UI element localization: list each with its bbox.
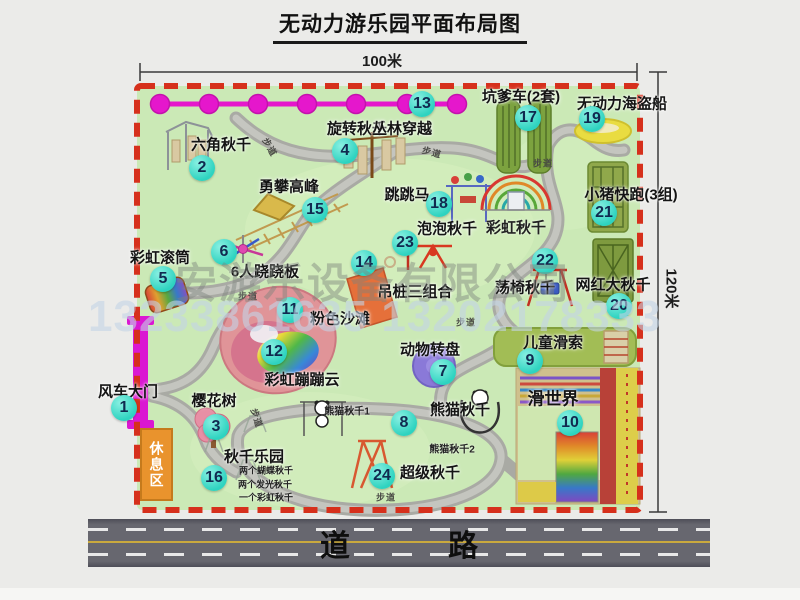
attraction-badge-3: 3 — [203, 414, 229, 440]
sub-label-0: 彩虹秋千 — [486, 217, 546, 238]
attraction-badge-19: 19 — [579, 106, 605, 132]
attraction-label-23: 泡泡秋千 — [417, 218, 477, 239]
attraction-label-15: 勇攀高峰 — [259, 176, 319, 197]
attraction-badge-4: 4 — [332, 138, 358, 164]
walkway-label-6: 步道 — [376, 491, 396, 504]
sub-label-4: 两个发光秋千 — [238, 478, 292, 491]
attraction-label-22: 荡椅秋千 — [495, 277, 555, 298]
attraction-badge-22: 22 — [532, 248, 558, 274]
attraction-badge-18: 18 — [426, 191, 452, 217]
height-dimension-label: 120米 — [662, 268, 683, 308]
attraction-label-2: 六角秋千 — [191, 134, 251, 155]
attraction-badge-5: 5 — [150, 266, 176, 292]
rest-area-label: 休息区 — [147, 441, 167, 489]
attraction-badge-23: 23 — [392, 230, 418, 256]
attraction-badge-6: 6 — [211, 239, 237, 265]
attraction-badge-2: 2 — [189, 155, 215, 181]
attraction-badge-8: 8 — [391, 410, 417, 436]
attraction-badge-16: 16 — [201, 465, 227, 491]
attraction-badge-15: 15 — [302, 197, 328, 223]
road-label: 道 路 — [286, 521, 512, 565]
playground-map-page: 无动力游乐园平面布局图 — [0, 0, 800, 600]
attraction-badge-13: 13 — [409, 91, 435, 117]
attraction-badge-21: 21 — [591, 200, 617, 226]
attraction-label-20: 网红大秋千 — [575, 274, 650, 295]
attraction-label-6: 6人跷跷板 — [231, 261, 299, 282]
page-title: 无动力游乐园平面布局图 — [273, 8, 527, 44]
attraction-label-11: 粉色沙滩 — [310, 308, 370, 329]
attraction-badge-14: 14 — [351, 250, 377, 276]
attraction-badge-20: 20 — [606, 293, 632, 319]
attraction-badge-7: 7 — [430, 359, 456, 385]
attraction-badge-10: 10 — [557, 410, 583, 436]
attraction-label-17: 坑爹车(2套) — [482, 86, 560, 107]
attraction-label-24: 超级秋千 — [400, 462, 460, 483]
walkway-label-2: 步道 — [533, 157, 553, 170]
width-dimension-label: 100米 — [362, 50, 402, 71]
attraction-label-14: 吊桩三组合 — [377, 281, 452, 302]
sub-label-3: 两个蝴蝶秋千 — [239, 464, 293, 477]
attraction-badge-1: 1 — [111, 395, 137, 421]
attraction-badge-12: 12 — [261, 339, 287, 365]
road: 道 路 — [88, 519, 710, 567]
attraction-label-10: 滑世界 — [528, 385, 579, 410]
attraction-badge-24: 24 — [369, 463, 395, 489]
rest-area-sign: 休息区 — [140, 428, 173, 501]
attraction-label-3: 樱花树 — [191, 390, 236, 411]
attraction-label-5: 彩虹滚筒 — [130, 247, 190, 268]
walkway-label-4: 步道 — [456, 316, 476, 329]
sub-label-2: 熊猫秋千2 — [429, 441, 475, 456]
attraction-label-7: 动物转盘 — [400, 339, 460, 360]
attraction-label-8: 熊猫秋千 — [430, 399, 490, 420]
attraction-badge-11: 11 — [277, 297, 303, 323]
attraction-badge-9: 9 — [517, 348, 543, 374]
attraction-label-12: 彩虹蹦蹦云 — [264, 369, 339, 390]
attraction-badge-17: 17 — [515, 105, 541, 131]
walkway-label-3: 步道 — [238, 290, 258, 303]
attraction-label-13: 丛林穿越 — [372, 118, 432, 139]
sub-label-5: 一个彩虹秋千 — [239, 491, 293, 504]
attraction-label-18: 跳跳马 — [384, 184, 429, 205]
sub-label-1: 熊猫秋千1 — [324, 403, 370, 418]
